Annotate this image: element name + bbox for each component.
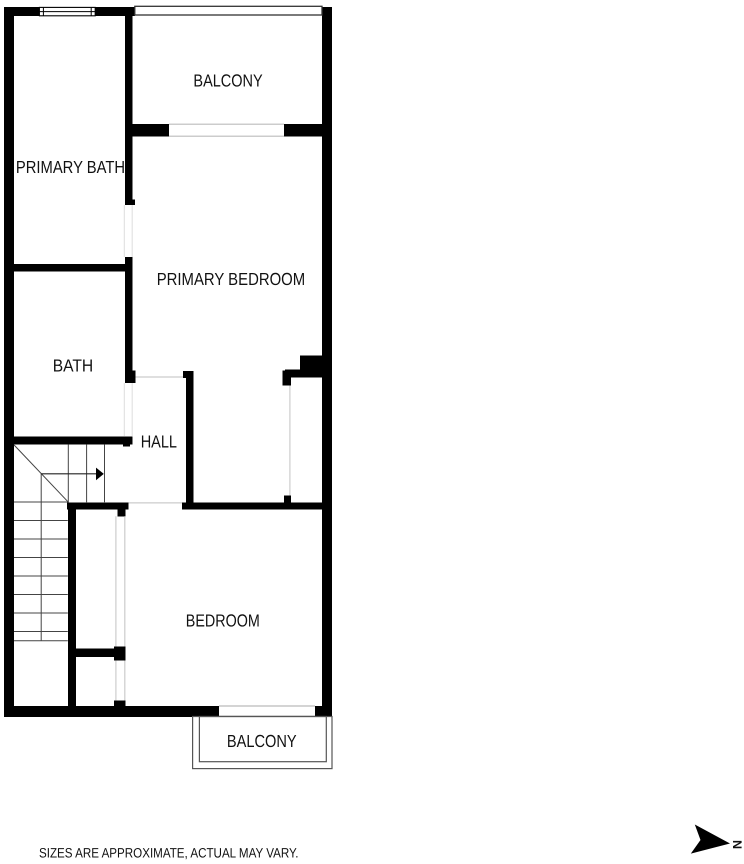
svg-text:PRIMARY BATH: PRIMARY BATH [16,157,125,177]
svg-text:BALCONY: BALCONY [227,731,297,751]
svg-text:BATH: BATH [53,355,93,375]
svg-text:BALCONY: BALCONY [193,71,263,91]
svg-text:SIZES ARE APPROXIMATE, ACTUAL: SIZES ARE APPROXIMATE, ACTUAL MAY VARY. [39,845,299,860]
svg-text:N: N [730,840,744,849]
svg-text:PRIMARY BEDROOM: PRIMARY BEDROOM [157,269,306,289]
svg-text:BEDROOM: BEDROOM [186,611,260,631]
svg-text:HALL: HALL [141,432,178,452]
